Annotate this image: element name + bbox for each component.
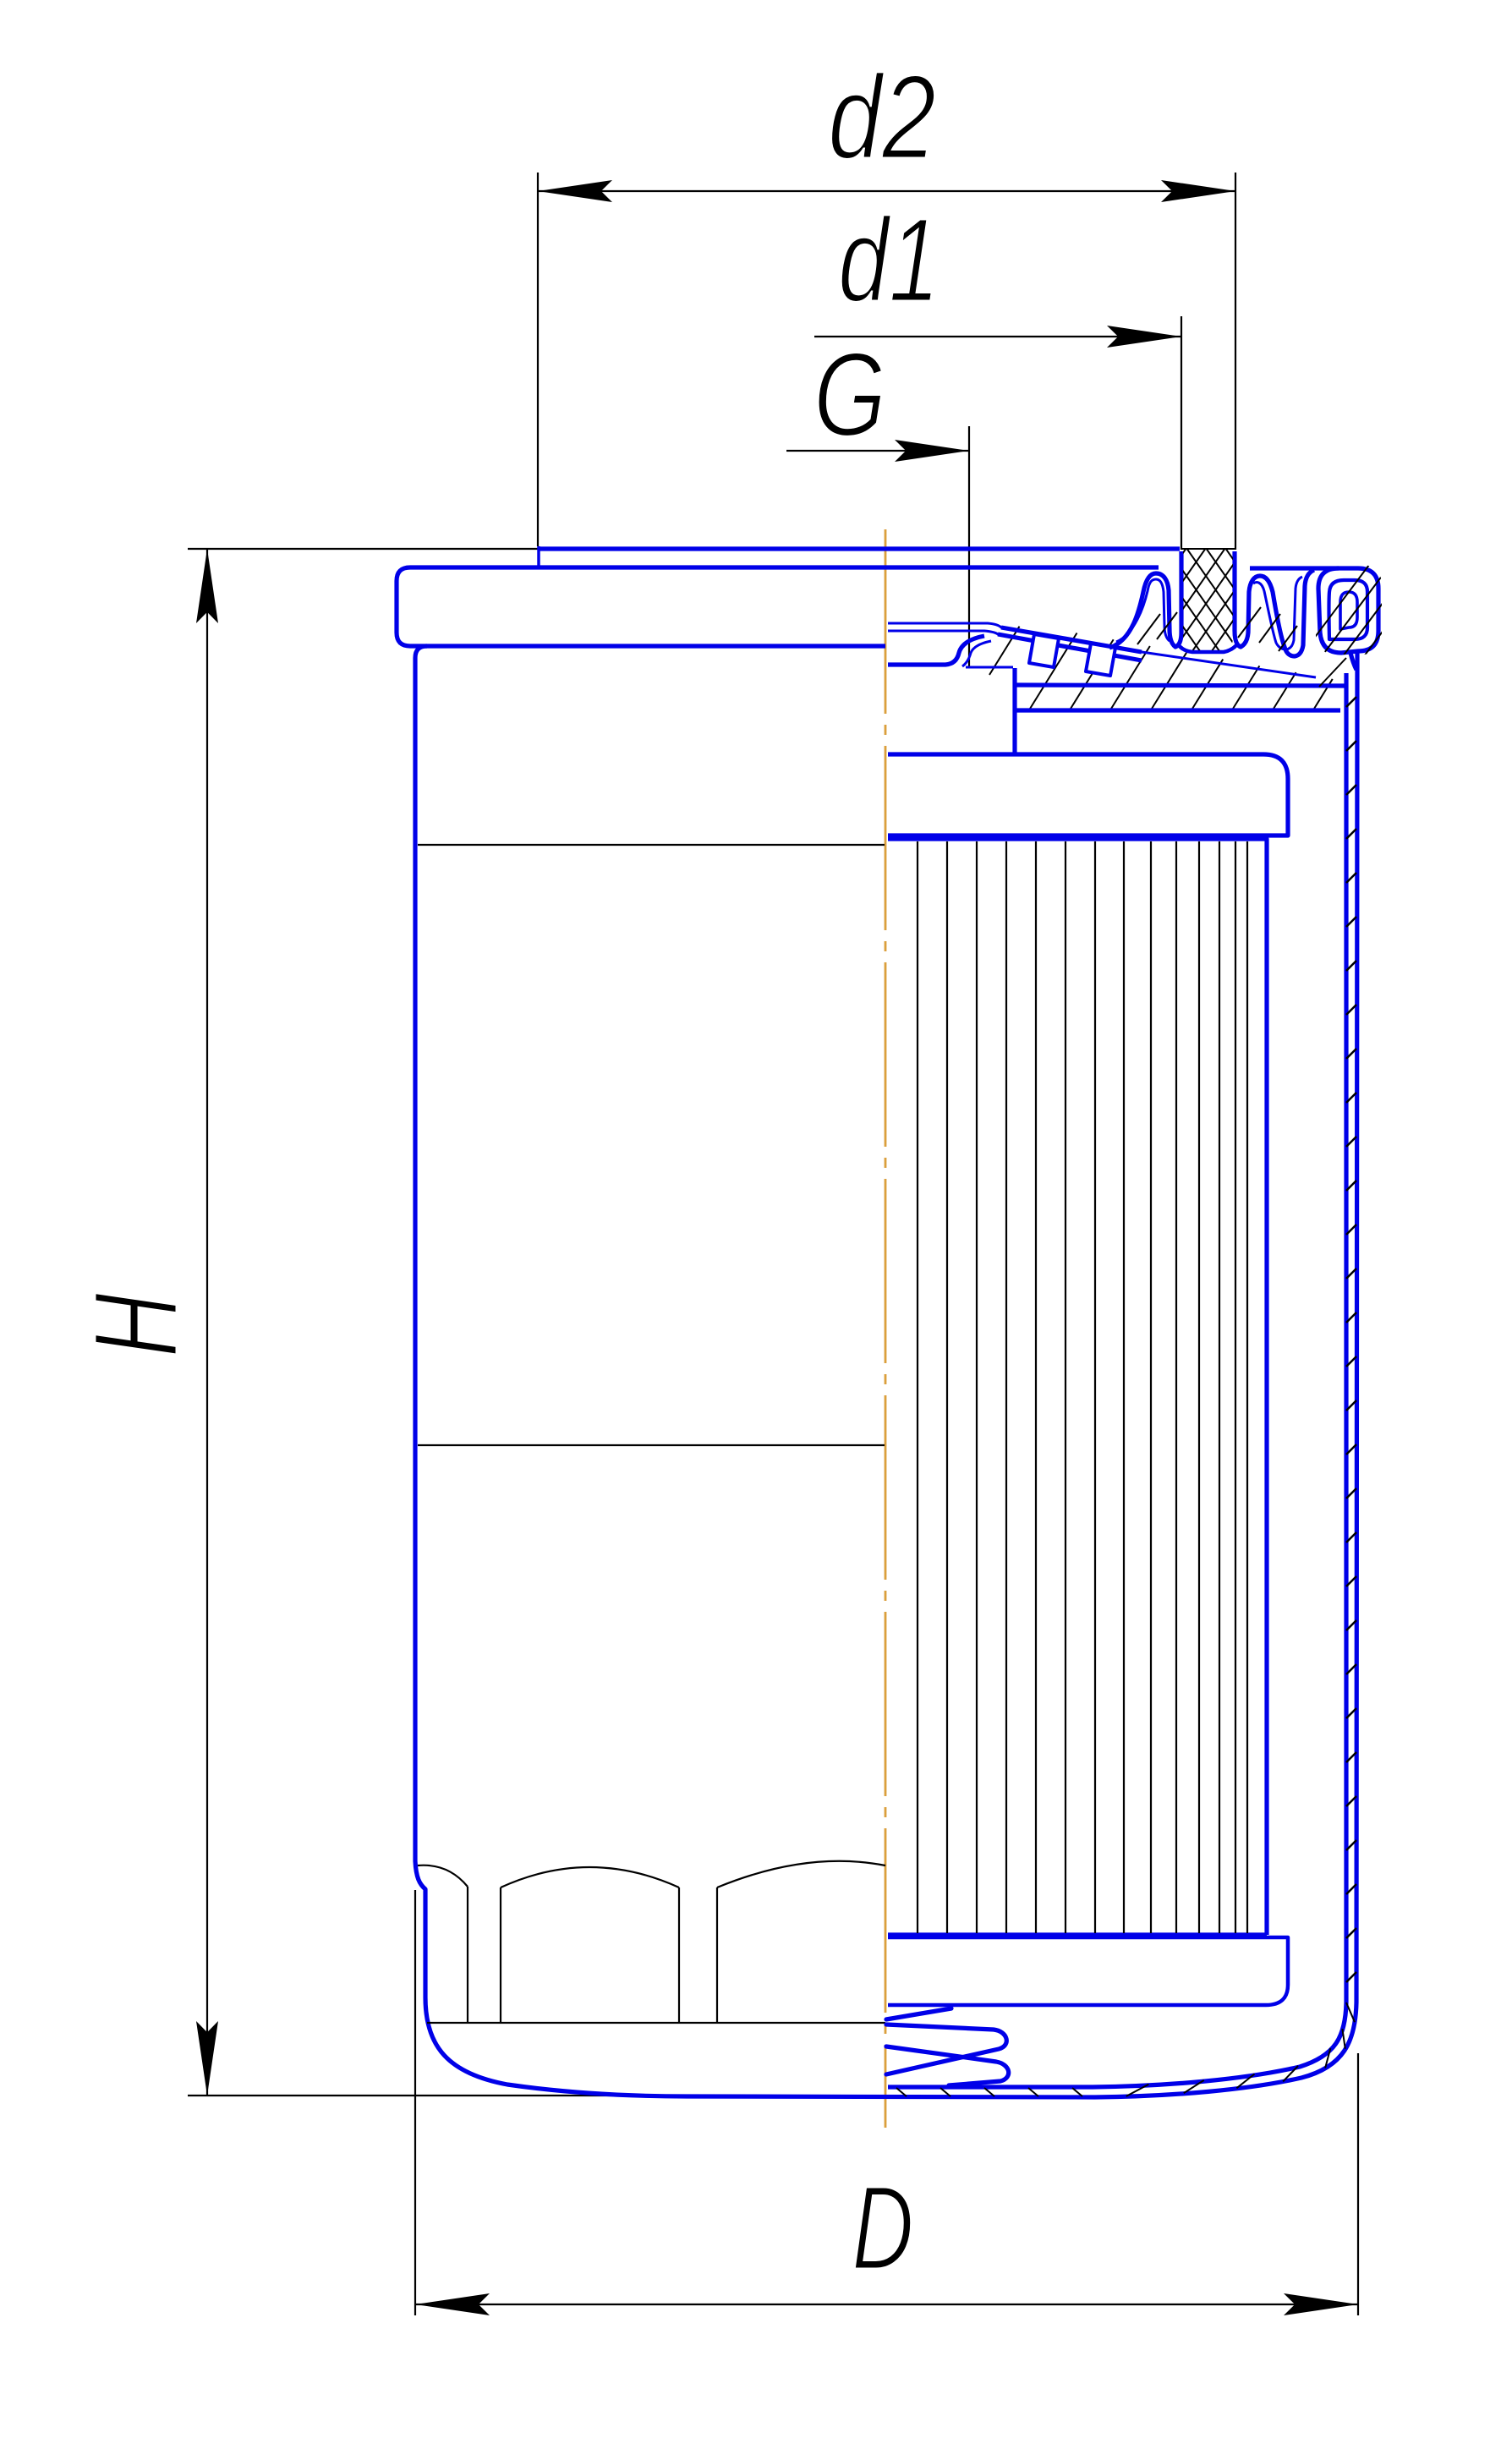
svg-text:d1: d1 — [838, 193, 940, 326]
svg-text:H: H — [68, 1293, 202, 1357]
svg-text:D: D — [852, 2161, 914, 2294]
svg-text:G: G — [814, 327, 886, 461]
svg-text:d2: d2 — [828, 50, 936, 184]
